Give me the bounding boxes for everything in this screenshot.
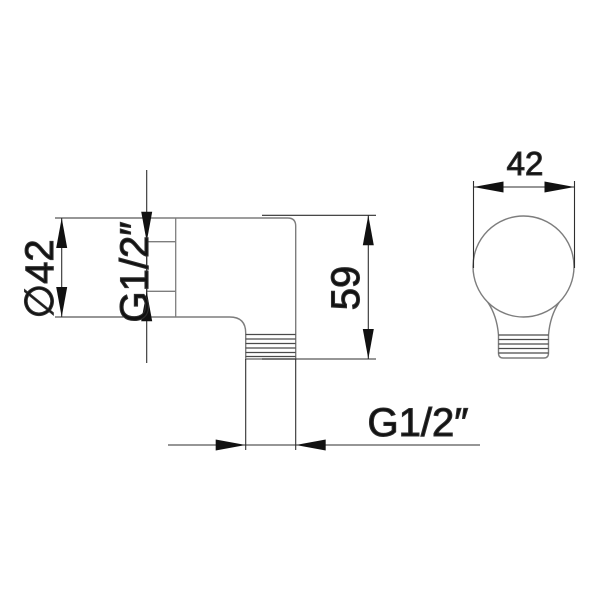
front-view bbox=[473, 216, 574, 358]
technical-drawing: ∅42 G1/2″ 59 G1/2″ 42 bbox=[0, 0, 600, 600]
arrowhead-right-icon bbox=[216, 440, 246, 451]
arrowhead-right-icon bbox=[545, 182, 575, 193]
drawing-canvas: ∅42 G1/2″ 59 G1/2″ 42 bbox=[0, 0, 600, 600]
arrowhead-down-icon bbox=[363, 329, 374, 359]
dim-label-height: 59 bbox=[324, 266, 368, 311]
dim-inlet-thread: G1/2″ bbox=[113, 170, 157, 363]
dim-label-inlet-thread: G1/2″ bbox=[113, 222, 157, 323]
arrowhead-left-icon bbox=[474, 182, 504, 193]
dim-height-59: 59 bbox=[262, 215, 376, 359]
dim-outlet-thread: G1/2″ bbox=[168, 359, 480, 451]
arrowhead-left-icon bbox=[296, 440, 326, 451]
arrowhead-up-icon bbox=[363, 215, 374, 245]
ball-outline bbox=[473, 216, 574, 317]
side-view-outline bbox=[147, 218, 296, 359]
side-view bbox=[147, 218, 296, 359]
side-view-thread bbox=[246, 335, 296, 357]
dim-label-diameter: ∅42 bbox=[18, 239, 62, 318]
dim-label-outlet-thread: G1/2″ bbox=[368, 401, 469, 445]
dim-label-width: 42 bbox=[507, 145, 544, 182]
dim-width-42: 42 bbox=[474, 145, 575, 268]
front-view-thread bbox=[499, 335, 549, 353]
